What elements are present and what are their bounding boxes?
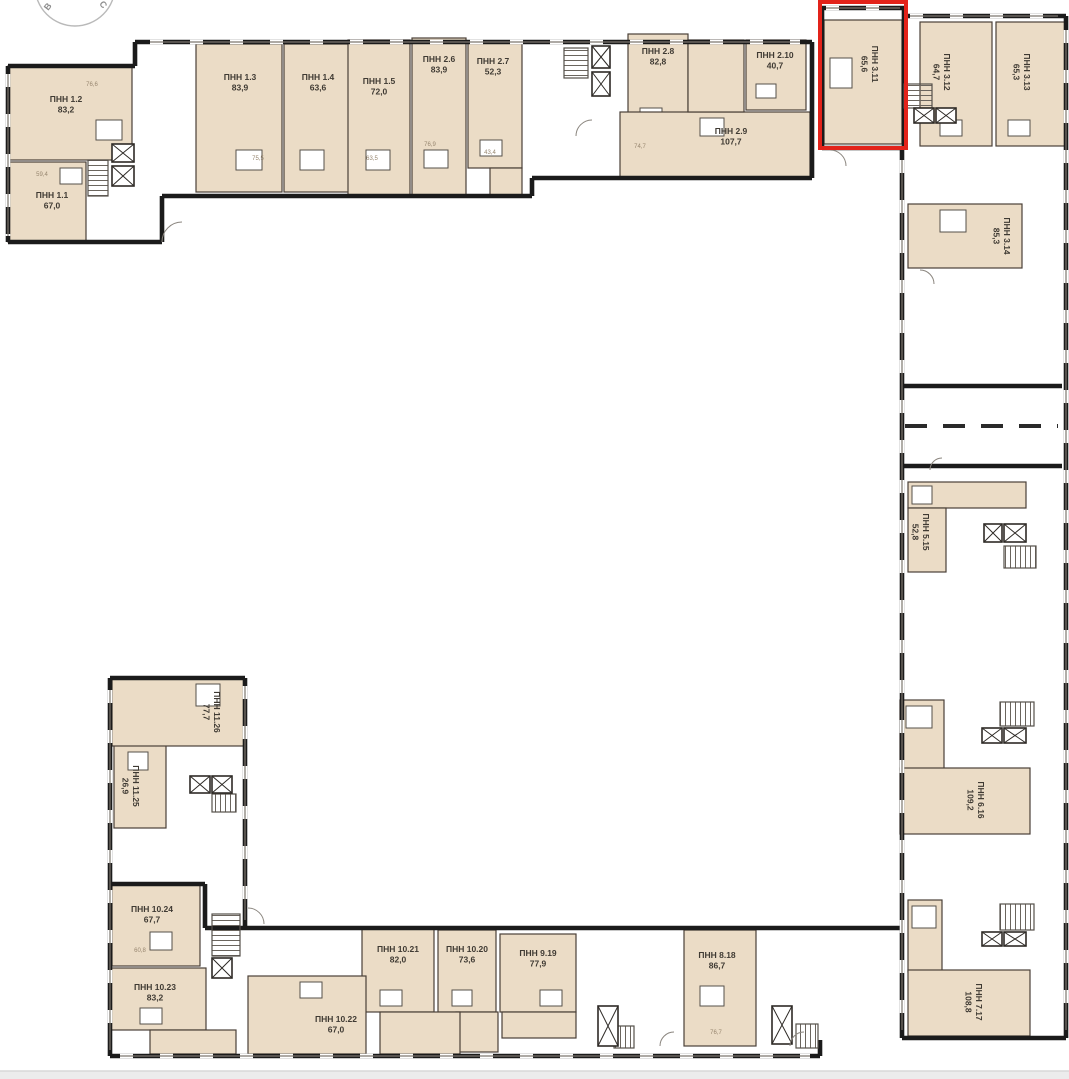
apartment-shape xyxy=(112,678,244,746)
bathroom-pod xyxy=(830,58,852,88)
apartment-area: 82,0 xyxy=(390,955,407,965)
apartment-area: 83,9 xyxy=(431,65,448,75)
elevator-core xyxy=(982,702,1034,743)
apartment-area: 52,3 xyxy=(485,67,502,77)
apartment-number: ПНН 2.8 xyxy=(642,46,675,56)
bathroom-pod xyxy=(452,990,472,1006)
room-area-label: 75,5 xyxy=(252,156,264,162)
stairs xyxy=(88,160,108,196)
apartment-8-18[interactable]: ПНН 8.1886,7 xyxy=(684,930,756,1046)
apartment-shape xyxy=(150,1030,236,1054)
apartment-shape xyxy=(380,1012,460,1054)
apartment-number: ПНН 10.20 xyxy=(446,944,488,954)
bathroom-pod xyxy=(756,84,776,98)
apartment-number: ПНН 2.7 xyxy=(477,56,510,66)
apartment-2-7[interactable]: ПНН 2.752,3 xyxy=(468,42,522,196)
apartment-11-25[interactable]: ПНН 11.2526,9 xyxy=(114,744,166,828)
compass-rose: В С xyxy=(35,0,115,26)
bathroom-pod xyxy=(540,990,562,1006)
bathroom-pod xyxy=(380,990,402,1006)
apartment-shape xyxy=(900,768,1030,834)
apartment-number: ПНН 1.5 xyxy=(363,76,396,86)
floor-plan-page: ПНН 1.167,0ПНН 1.283,2ПНН 1.383,9ПНН 1.4… xyxy=(0,0,1069,1079)
plan-layers: ПНН 1.167,0ПНН 1.283,2ПНН 1.383,9ПНН 1.4… xyxy=(8,2,1066,1056)
apartment-shape xyxy=(456,1012,498,1052)
apartment-10-24[interactable]: ПНН 10.2467,7 xyxy=(112,884,200,966)
apartment-shape xyxy=(500,934,576,1012)
apartment-10-23[interactable]: ПНН 10.2383,2 xyxy=(110,968,236,1054)
apartment-shape xyxy=(502,1012,576,1038)
apartment-number: ПНН 3.12 xyxy=(942,53,952,91)
apartment-number: ПНН 3.11 xyxy=(870,46,880,83)
room-area-label: 74,7 xyxy=(634,144,646,150)
apartment-area: 65,6 xyxy=(860,56,870,73)
apartment-area: 109,2 xyxy=(966,789,976,811)
door-arc xyxy=(830,150,846,166)
apartment-area: 65,3 xyxy=(1012,64,1022,81)
apartment-2-6[interactable]: ПНН 2.683,9 xyxy=(412,38,466,196)
apartment-area: 82,8 xyxy=(650,57,667,67)
apartment-number: ПНН 1.2 xyxy=(50,94,83,104)
stairs xyxy=(904,84,932,108)
room-area-label: 76,9 xyxy=(424,142,436,148)
apartment-area: 73,6 xyxy=(459,955,476,965)
apartment-number: ПНН 11.25 xyxy=(131,765,141,807)
apartment-shape xyxy=(490,168,522,196)
bathroom-pod xyxy=(424,150,448,168)
bathroom-pod xyxy=(96,120,122,140)
apartment-3-11[interactable]: ПНН 3.1165,6 xyxy=(824,20,902,144)
apartment-9-19[interactable]: ПНН 9.1977,9 xyxy=(500,934,576,1038)
apartment-number: ПНН 10.23 xyxy=(134,982,176,992)
door-arc xyxy=(660,1032,674,1046)
elevator-core xyxy=(984,524,1036,568)
stairs xyxy=(564,48,588,78)
apartment-1-3[interactable]: ПНН 1.383,9 xyxy=(196,44,282,192)
apartment-number: ПНН 9.19 xyxy=(519,948,557,958)
room-area-label: 76,6 xyxy=(86,82,98,88)
apartment-area: 86,7 xyxy=(709,961,726,971)
apartment-area: 85,3 xyxy=(992,228,1002,245)
apartment-2-10[interactable]: ПНН 2.1040,7 xyxy=(746,40,806,110)
apartment-shape xyxy=(688,40,744,112)
elevator-core xyxy=(212,914,240,978)
apartment-3-14[interactable]: ПНН 3.1485,3 xyxy=(908,204,1022,268)
bathroom-pod xyxy=(140,1008,162,1024)
bathroom-pod xyxy=(912,906,936,928)
apartment-11-26[interactable]: ПНН 11.2677,7 xyxy=(112,678,244,746)
apartment-number: ПНН 10.24 xyxy=(131,904,173,914)
apartment-shape xyxy=(348,40,410,196)
apartment-area: 64,7 xyxy=(932,64,942,81)
elevator-core xyxy=(982,904,1034,946)
apartment-number: ПНН 3.14 xyxy=(1002,217,1012,255)
floor-plan-svg: ПНН 1.167,0ПНН 1.283,2ПНН 1.383,9ПНН 1.4… xyxy=(0,0,1069,1079)
room-area-label: 60,8 xyxy=(134,948,146,954)
apartment-number: ПНН 1.3 xyxy=(224,72,257,82)
bathroom-pod xyxy=(300,150,324,170)
apartment-area: 108,8 xyxy=(964,991,974,1013)
bathroom-pod xyxy=(1008,120,1030,136)
apartment-number: ПНН 1.1 xyxy=(36,190,69,200)
stairs xyxy=(1000,904,1034,930)
apartment-area: 52,8 xyxy=(911,524,921,541)
apartment-area: 26,9 xyxy=(121,778,131,795)
bathroom-pod xyxy=(912,486,932,504)
apartment-number: ПНН 1.4 xyxy=(302,72,335,82)
apartment-area: 40,7 xyxy=(767,61,784,71)
room-area-label: 76,7 xyxy=(710,1030,722,1036)
stairs xyxy=(212,914,240,956)
apartment-number: ПНН 6.16 xyxy=(976,781,986,819)
apartment-area: 77,9 xyxy=(530,959,547,969)
apartment-area: 83,2 xyxy=(58,105,75,115)
footer-bar xyxy=(0,1071,1069,1079)
apartment-number: ПНН 10.22 xyxy=(315,1014,357,1024)
apartment-1-5[interactable]: ПНН 1.572,0 xyxy=(348,40,410,196)
door-arc xyxy=(248,908,264,924)
apartment-area: 107,7 xyxy=(720,137,742,147)
apartment-number: ПНН 2.10 xyxy=(756,50,794,60)
bathroom-pod xyxy=(300,982,322,998)
apartment-area: 83,9 xyxy=(232,83,249,93)
apartment-area: 67,0 xyxy=(328,1025,345,1035)
stairs xyxy=(1004,546,1036,568)
bathroom-pod xyxy=(150,932,172,950)
room-area-label: 43,4 xyxy=(484,150,496,156)
room-area-label: 63,5 xyxy=(366,156,378,162)
stairs xyxy=(1000,702,1034,726)
door-arc xyxy=(576,120,592,136)
apartment-area: 72,0 xyxy=(371,87,388,97)
apartment-area: 83,2 xyxy=(147,993,164,1003)
elevator-core xyxy=(772,1006,818,1048)
apartment-number: ПНН 3.13 xyxy=(1022,53,1032,91)
apartment-number: ПНН 7.17 xyxy=(974,983,984,1021)
stairs xyxy=(212,794,236,812)
apartment-10-22[interactable]: ПНН 10.2267,0 xyxy=(248,976,366,1054)
apartment-area: 63,6 xyxy=(310,83,327,93)
apartment-area: 77,7 xyxy=(202,704,212,721)
door-arc xyxy=(920,270,934,284)
apartment-number: ПНН 2.6 xyxy=(423,54,456,64)
apartment-area: 67,0 xyxy=(44,201,61,211)
apartment-number: ПНН 5.15 xyxy=(921,513,931,551)
apartment-number: ПНН 8.18 xyxy=(698,950,736,960)
bathroom-pod xyxy=(906,706,932,728)
bathroom-pod xyxy=(940,210,966,232)
bathroom-pod xyxy=(700,986,724,1006)
elevator-core xyxy=(564,46,610,96)
apartment-number: ПНН 11.26 xyxy=(212,691,222,733)
apartment-shape xyxy=(112,884,200,966)
room-area-label: 59,4 xyxy=(36,172,48,178)
page-bottom-bar xyxy=(0,1071,1069,1079)
elevator-core xyxy=(190,776,236,812)
apartment-number: ПНН 2.9 xyxy=(715,126,748,136)
apartment-3-13[interactable]: ПНН 3.1365,3 xyxy=(996,22,1066,146)
apartment-number: ПНН 10.21 xyxy=(377,944,419,954)
stairs xyxy=(796,1024,818,1048)
elevator-core xyxy=(598,1006,634,1048)
apartment-1-4[interactable]: ПНН 1.463,6 xyxy=(284,44,352,192)
bathroom-pod xyxy=(60,168,82,184)
door-arc xyxy=(162,222,182,242)
apartment-area: 67,7 xyxy=(144,915,161,925)
